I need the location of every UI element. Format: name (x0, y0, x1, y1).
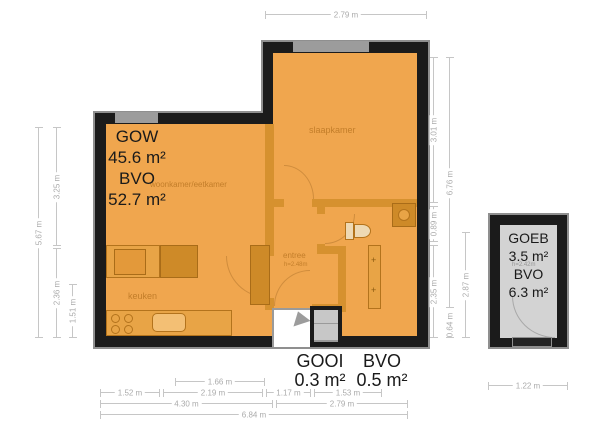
washer-drum (398, 209, 410, 221)
dim-right-235: 2.35 m (433, 245, 434, 338)
porch-area-label: GOOI 0.3 m² (290, 352, 350, 390)
closet-shelf-line (314, 323, 338, 324)
dim-bottom-153: 1.53 m (314, 392, 382, 393)
kitchen-fridge (250, 245, 270, 305)
porch-bvo-label: BVO 0.5 m² (352, 352, 412, 390)
dim-left-567: 5.67 m (38, 127, 39, 338)
window (115, 112, 158, 123)
shed-area-goeb: GOEB (498, 229, 559, 247)
dim-left-236: 2.36 m (56, 248, 57, 338)
dim-bottom-684: 6.84 m (100, 414, 408, 415)
dim-bottom-166: 1.66 m (175, 381, 265, 382)
kitchen-label: keuken (128, 291, 157, 301)
dim-right-064: 0.64 m (449, 311, 450, 338)
main-area-label: GOW 45.6 m² BVO 52.7 m² (100, 126, 174, 210)
dim-bottom-279: 2.79 m (276, 403, 408, 404)
dim-bottom-430: 4.30 m (100, 403, 273, 404)
main-area-bvo-value: 52.7 m² (100, 189, 174, 210)
partition-hall-bath-lower (338, 252, 346, 312)
bedroom-label: slaapkamer (309, 125, 356, 135)
porch-area-gooi: GOOI (290, 352, 350, 371)
dim-right-676: 6.76 m (449, 57, 450, 308)
porch-area-gooi-value: 0.3 m² (290, 371, 350, 390)
shed-door-leaf (512, 337, 552, 347)
stove-burner (124, 325, 133, 334)
shed-area-bvo: BVO (498, 265, 559, 283)
entry-label: entree (283, 251, 306, 260)
dim-right-089: 0.89 m (433, 206, 434, 242)
dim-bottom-219: 2.19 m (163, 392, 263, 393)
closet-interior (314, 310, 338, 342)
dim-bottom-117: 1.17 m (266, 392, 311, 393)
dim-left-325: 3.25 m (56, 127, 57, 246)
dim-left-151: 1.51 m (72, 284, 73, 338)
radiator-valve-icon: + (371, 286, 376, 295)
dim-bottom-152: 1.52 m (100, 392, 160, 393)
shed-area-bvo-value: 6.3 m² (498, 283, 559, 301)
dim-top-279: 2.79 m (265, 14, 427, 15)
partition-living-bedroom (265, 124, 274, 207)
main-area-gow-value: 45.6 m² (100, 147, 174, 168)
stove-burner (111, 325, 120, 334)
stove-burner (111, 314, 120, 323)
main-area-bvo: BVO (100, 168, 174, 189)
toilet-tank (345, 222, 354, 240)
dim-right-301: 3.01 m (433, 57, 434, 203)
window (293, 41, 369, 52)
radiator-valve-icon: + (371, 256, 376, 265)
main-area-gow: GOW (100, 126, 174, 147)
toilet-bowl (354, 224, 371, 238)
floorplan-canvas: + + slaapkamer woonkamer/eetkamer keuken… (0, 0, 600, 424)
entry-height-note: h=2.48m (284, 262, 308, 268)
porch-area-bvo-value: 0.5 m² (352, 371, 412, 390)
kitchen-appliance (160, 245, 198, 278)
shed-area-goeb-value: 3.5 m² (498, 247, 559, 265)
kitchen-hob (114, 249, 146, 275)
kitchen-sink (152, 313, 186, 332)
dim-right-287: 2.87 m (465, 232, 466, 338)
shed-area-label: GOEB 3.5 m² BVO 6.3 m² (498, 229, 559, 301)
stove-burner (124, 314, 133, 323)
porch-area-bvo: BVO (352, 352, 412, 371)
partition-bedroom-hall (274, 199, 284, 207)
dim-shed-122: 1.22 m (488, 385, 568, 386)
partition-hall-bath-upper (317, 207, 325, 214)
